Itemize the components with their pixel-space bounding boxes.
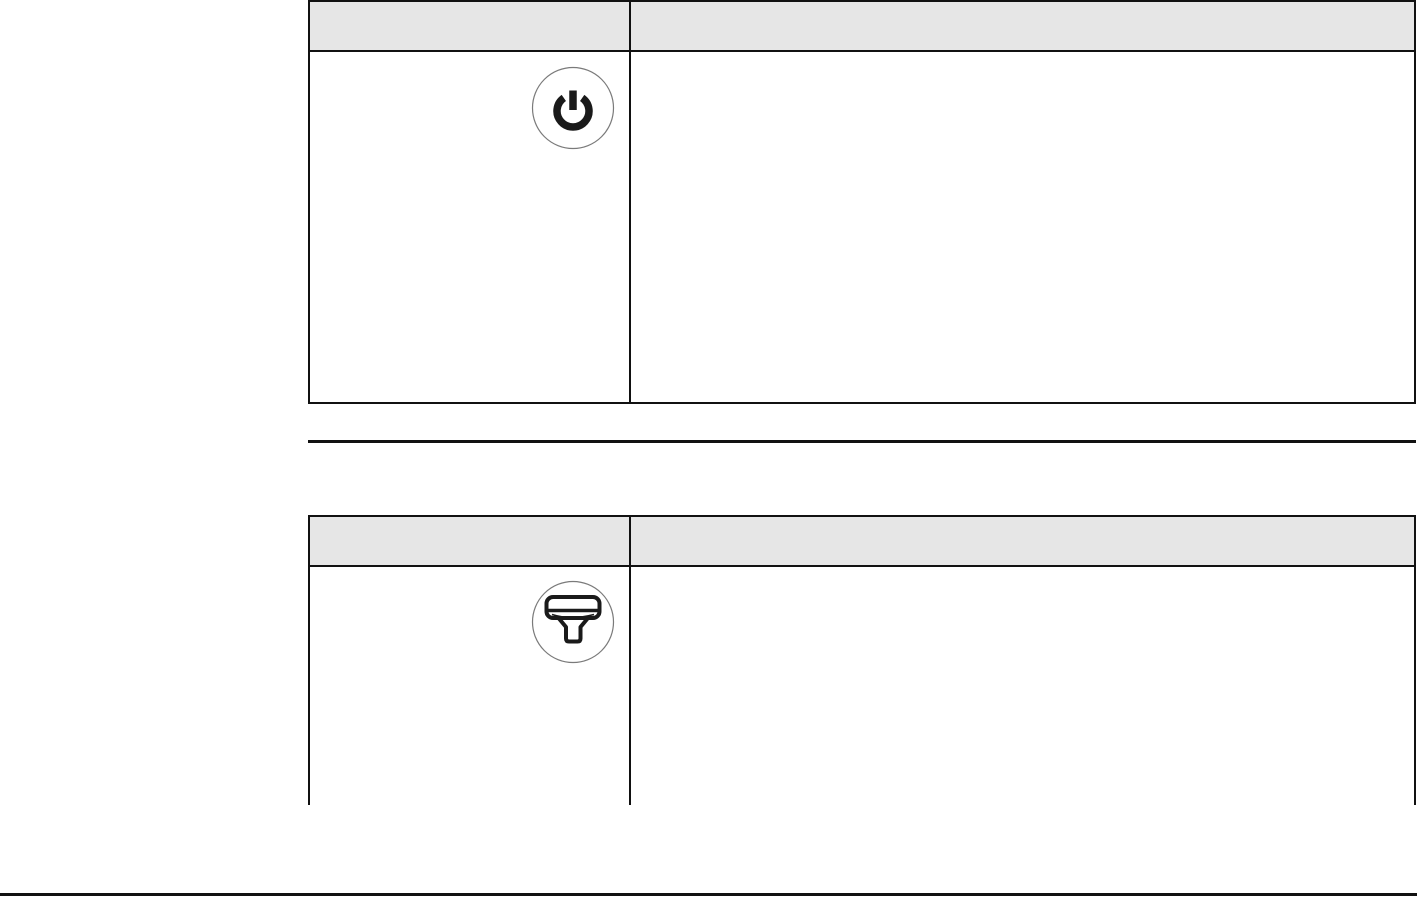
- scanner-table-description-cell: [631, 567, 1414, 805]
- section-divider-rule: [308, 440, 1416, 443]
- power-table-header-row: [310, 2, 1414, 52]
- scanner-table: [308, 515, 1416, 805]
- power-button-table: [308, 0, 1416, 404]
- scanner-table-header-row: [310, 517, 1414, 567]
- power-table-header-cell-right: [631, 2, 1414, 50]
- scanner-table-row: [310, 567, 1414, 805]
- manual-page: [0, 0, 1417, 901]
- power-table-row: [310, 52, 1414, 402]
- power-table-column-divider: [629, 2, 631, 402]
- page-footer-rule: [0, 893, 1417, 896]
- barcode-scanner-icon: [531, 580, 615, 664]
- scanner-table-header-cell-right: [631, 517, 1414, 565]
- power-table-description-cell: [631, 52, 1414, 402]
- scanner-table-header-cell-left: [310, 517, 631, 565]
- power-table-header-cell-left: [310, 2, 631, 50]
- power-icon: [531, 66, 615, 150]
- scanner-table-column-divider: [629, 517, 631, 805]
